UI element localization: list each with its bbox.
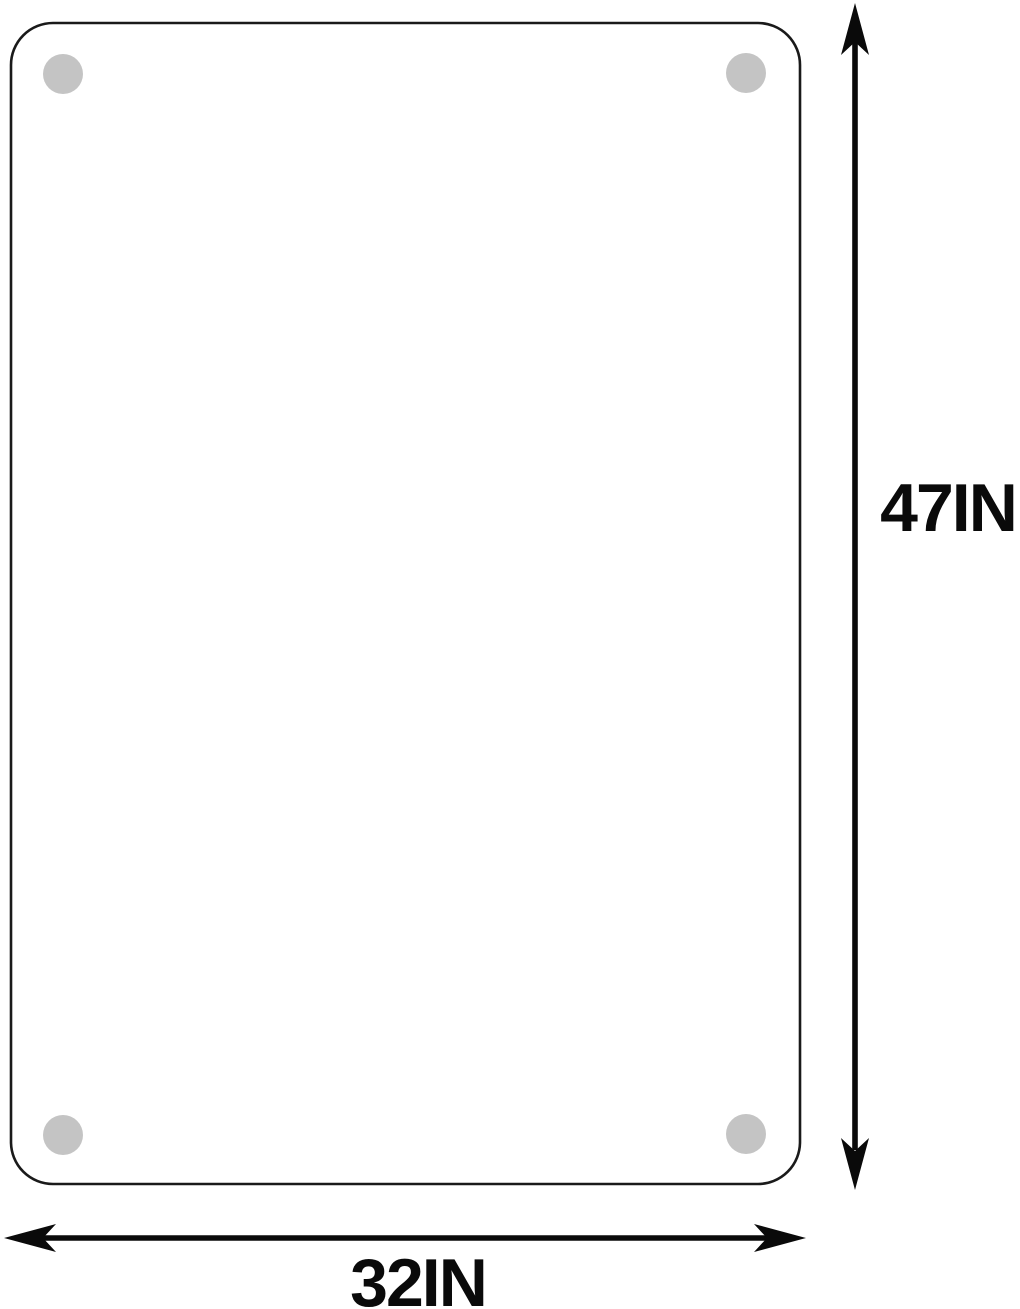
width-dimension-label: 32IN — [350, 1245, 486, 1309]
mounting-hole-bottom-right-icon — [726, 1114, 766, 1154]
panel-outline — [11, 23, 800, 1184]
dimension-diagram: 47IN 32IN — [0, 0, 1020, 1309]
dimension-diagram-canvas: 47IN 32IN — [0, 0, 1020, 1309]
mounting-hole-bottom-left-icon — [43, 1115, 83, 1155]
height-dimension-arrow — [841, 3, 869, 1190]
mounting-hole-top-right-icon — [726, 53, 766, 93]
height-dimension-label: 47IN — [880, 470, 1016, 546]
mounting-hole-top-left-icon — [43, 54, 83, 94]
